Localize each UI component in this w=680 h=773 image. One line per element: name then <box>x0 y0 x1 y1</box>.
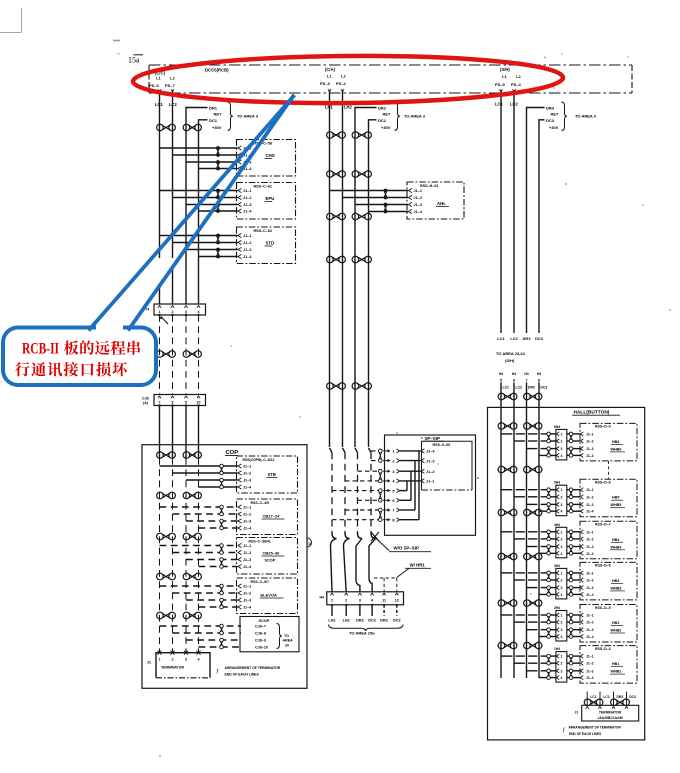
svg-text:J1–1: J1–1 <box>586 614 594 618</box>
svg-text:J1–1: J1–1 <box>586 488 594 492</box>
svg-text:J1–4: J1–4 <box>243 565 252 569</box>
svg-text:4H4: 4H4 <box>554 523 560 527</box>
svg-text:1: 1 <box>561 614 563 618</box>
svg-text:4: 4 <box>561 635 563 639</box>
svg-text:2: 2 <box>392 458 395 463</box>
svg-text:J1–4: J1–4 <box>586 593 594 597</box>
svg-text:H4: H4 <box>512 372 516 376</box>
svg-text:2H4: 2H4 <box>554 606 560 610</box>
svg-text:J1–2: J1–2 <box>243 551 251 555</box>
svg-text:DR3: DR3 <box>616 695 623 699</box>
svg-text:4: 4 <box>561 454 563 458</box>
svg-text:TO: TO <box>284 634 289 638</box>
svg-text:J1–4: J1–4 <box>586 510 594 514</box>
svg-text:4: 4 <box>392 479 395 484</box>
svg-text:J1–3: J1–3 <box>586 669 594 673</box>
svg-text:J1–4: J1–4 <box>243 255 252 259</box>
svg-text:LC2: LC2 <box>603 695 609 699</box>
svg-text:CJ8–9: CJ8–9 <box>255 639 266 643</box>
svg-text:J1–1: J1–1 <box>586 432 594 436</box>
svg-text:(S/H): (S/H) <box>505 358 515 363</box>
svg-text:H4: H4 <box>499 372 503 376</box>
svg-text:1: 1 <box>561 571 563 575</box>
svg-text:8: 8 <box>172 401 174 405</box>
svg-text:(S/H): (S/H) <box>500 67 510 72</box>
svg-text:7: 7 <box>525 378 527 383</box>
svg-text:DC2: DC2 <box>378 118 387 123</box>
svg-text:LC2: LC2 <box>510 102 518 107</box>
svg-text:LC1: LC1 <box>503 386 510 390</box>
svg-text:2: 2 <box>561 621 563 625</box>
svg-text:J1–2: J1–2 <box>586 662 594 666</box>
svg-text:CHS: CHS <box>266 153 275 158</box>
svg-text:DR3: DR3 <box>528 386 535 390</box>
svg-text:J1–4: J1–4 <box>414 210 423 214</box>
svg-text:LC1: LC1 <box>590 695 596 699</box>
svg-text:TERMINATOR: TERMINATOR <box>599 710 622 714</box>
svg-text:J1–1: J1–1 <box>243 189 251 193</box>
svg-text:RSS–C–38/41: RSS–C–38/41 <box>249 539 271 543</box>
svg-text:15a: 15a <box>128 56 140 65</box>
svg-text:HB5: HB5 <box>612 496 619 500</box>
svg-text:J1–2: J1–2 <box>586 495 594 499</box>
svg-text:3: 3 <box>392 469 395 474</box>
svg-text:RSS–C–61: RSS–C–61 <box>254 185 272 189</box>
svg-text:WHB1: WHB1 <box>611 670 622 674</box>
svg-text:AHL: AHL <box>437 201 446 206</box>
svg-text:RSS–D–8: RSS–D–8 <box>595 481 611 485</box>
svg-text:DR2: DR2 <box>356 619 364 623</box>
svg-text:CB17–24: CB17–24 <box>263 514 281 519</box>
svg-text:CJ8–8: CJ8–8 <box>255 632 266 636</box>
svg-text:RSS–H–61: RSS–H–61 <box>420 184 438 188</box>
svg-text:ƒ: ƒ <box>216 668 219 675</box>
svg-text:6H4: 6H4 <box>554 425 560 429</box>
svg-text:ARRANGEMENT OF TERMINATOR: ARRANGEMENT OF TERMINATOR <box>225 666 281 670</box>
svg-text:LH2: LH2 <box>343 619 350 623</box>
svg-text:J1–1: J1–1 <box>243 506 251 510</box>
svg-text:2: 2 <box>171 658 173 662</box>
svg-text:J1–3: J1–3 <box>586 447 594 451</box>
svg-text:3: 3 <box>561 545 563 549</box>
svg-text:DC2: DC2 <box>393 619 401 623</box>
svg-text:3: 3 <box>561 586 563 590</box>
svg-text:1: 1 <box>561 655 563 659</box>
svg-text:J1–4: J1–4 <box>243 606 252 610</box>
svg-text:RSS–D–4: RSS–D–4 <box>595 647 611 651</box>
svg-text:LC1: LC1 <box>155 102 163 107</box>
svg-text:J1–2: J1–2 <box>414 196 422 200</box>
svg-text:4: 4 <box>561 676 563 680</box>
svg-text:9: 9 <box>185 401 187 405</box>
svg-text:RSS(COPB)–C–6/12: RSS(COPB)–C–6/12 <box>243 458 275 462</box>
svg-text:CJ8: CJ8 <box>142 397 149 401</box>
svg-text:J1–3: J1–3 <box>243 558 251 562</box>
svg-text:STB: STB <box>268 472 276 477</box>
svg-text:+30V: +30V <box>381 125 391 130</box>
svg-text:3: 3 <box>561 628 563 632</box>
svg-text:2: 2 <box>561 495 563 499</box>
svg-text:W/O SP–SIP: W/O SP–SIP <box>394 546 419 551</box>
svg-text:DC3: DC3 <box>535 336 544 341</box>
svg-text:J1–3: J1–3 <box>243 203 251 207</box>
svg-text:RSS–C–6/7: RSS–C–6/7 <box>251 580 270 584</box>
svg-text:J1–2: J1–2 <box>243 196 251 200</box>
svg-text:CJ8–7: CJ8–7 <box>255 625 266 629</box>
svg-text:HB3: HB3 <box>612 579 619 583</box>
svg-text:L1: L1 <box>502 74 507 79</box>
svg-text:L2: L2 <box>516 74 521 79</box>
svg-text:J1–4: J1–4 <box>586 454 594 458</box>
svg-text:2: 2 <box>172 310 174 314</box>
svg-text:RET: RET <box>214 112 223 117</box>
svg-text:10: 10 <box>197 401 201 405</box>
svg-text:5: 5 <box>392 488 395 493</box>
svg-text:H4: H4 <box>524 372 528 376</box>
svg-text:J1–1: J1–1 <box>243 585 251 589</box>
svg-text:+30V: +30V <box>212 125 222 130</box>
svg-text:J1–1: J1–1 <box>243 234 251 238</box>
svg-text:3: 3 <box>185 658 187 662</box>
svg-text:PS–7: PS–7 <box>165 83 176 88</box>
svg-text:1: 1 <box>561 488 563 492</box>
svg-text:1: 1 <box>159 310 161 314</box>
svg-text:2: 2 <box>345 599 347 603</box>
svg-text:J1–2: J1–2 <box>426 470 434 474</box>
svg-text:4: 4 <box>197 658 200 662</box>
svg-text:J1–4: J1–4 <box>586 676 594 680</box>
svg-text:HB2: HB2 <box>612 621 619 625</box>
svg-text:J1–3: J1–3 <box>243 520 251 524</box>
svg-text:RSS–C–62: RSS–C–62 <box>254 229 272 233</box>
svg-text:J1–2: J1–2 <box>243 472 251 476</box>
svg-text:SCOP: SCOP <box>259 619 270 623</box>
svg-text:J1: J1 <box>147 661 151 665</box>
svg-text:RSS–D–9: RSS–D–9 <box>595 425 611 429</box>
svg-text:J1: J1 <box>575 711 579 715</box>
svg-text:LC2: LC2 <box>510 336 518 341</box>
svg-text:EPU: EPU <box>266 196 275 201</box>
svg-text:DCSS(RCB): DCSS(RCB) <box>205 68 229 73</box>
svg-text:PS–6: PS–6 <box>149 83 160 88</box>
svg-text:J1–3: J1–3 <box>586 503 594 507</box>
svg-text:J1–3: J1–3 <box>243 599 251 603</box>
svg-text:20: 20 <box>285 644 289 648</box>
svg-text:END OF EACH LINES: END OF EACH LINES <box>225 673 260 677</box>
svg-text:J1–4: J1–4 <box>243 486 252 490</box>
svg-text:TO AREA 3: TO AREA 3 <box>575 114 597 119</box>
svg-text:12: 12 <box>395 599 399 603</box>
svg-text:DR3: DR3 <box>546 106 555 111</box>
svg-text:3: 3 <box>561 447 563 451</box>
svg-text:L2: L2 <box>170 76 175 81</box>
svg-text:DR2: DR2 <box>378 106 387 111</box>
svg-text:DC3: DC3 <box>629 695 636 699</box>
svg-text:J1–3: J1–3 <box>243 479 251 483</box>
svg-text:J1–4: J1–4 <box>426 450 435 454</box>
svg-text:J1–1: J1–1 <box>414 189 422 193</box>
svg-text:HB1: HB1 <box>612 662 619 666</box>
svg-text:CB25–36: CB25–36 <box>263 551 281 556</box>
svg-text:AREA: AREA <box>283 639 294 643</box>
svg-text:J1–2: J1–2 <box>586 440 594 444</box>
svg-text:LC1: LC1 <box>495 102 503 107</box>
svg-text:2: 2 <box>561 579 563 583</box>
svg-text:1: 1 <box>561 530 563 534</box>
svg-text:4: 4 <box>561 510 563 514</box>
svg-text:J1–3: J1–3 <box>414 203 422 207</box>
svg-text:+30V: +30V <box>549 125 559 130</box>
svg-text:11: 11 <box>382 599 386 603</box>
svg-text:3: 3 <box>359 599 361 603</box>
svg-text:5H4: 5H4 <box>554 481 560 485</box>
svg-text:ELEVOA: ELEVOA <box>261 593 278 598</box>
svg-text:PS–2: PS–2 <box>336 81 347 86</box>
svg-text:L1: L1 <box>327 74 332 79</box>
svg-text:J1–1: J1–1 <box>586 530 594 534</box>
svg-text:W/ HR1: W/ HR1 <box>410 563 426 568</box>
svg-text:TO AREA 3: TO AREA 3 <box>404 114 426 119</box>
svg-text:J1–3: J1–3 <box>586 586 594 590</box>
svg-text:6: 6 <box>392 498 395 503</box>
svg-text:LC2: LC2 <box>516 386 523 390</box>
svg-text:WHB3: WHB3 <box>611 586 622 590</box>
svg-text:2: 2 <box>561 440 563 444</box>
svg-text:TO AREA 23,24: TO AREA 23,24 <box>496 351 526 356</box>
svg-text:J1–2: J1–2 <box>586 621 594 625</box>
svg-text:J1–4: J1–4 <box>586 552 594 556</box>
svg-text:WHB5: WHB5 <box>611 503 622 507</box>
svg-text:LC2: LC2 <box>169 102 177 107</box>
svg-text:RSS–C–4/5: RSS–C–4/5 <box>251 501 270 505</box>
svg-text:J1–3: J1–3 <box>243 248 251 252</box>
svg-text:J1–3: J1–3 <box>426 459 434 463</box>
svg-text:RET: RET <box>383 112 392 117</box>
svg-text:HB6: HB6 <box>612 440 619 444</box>
svg-text:3: 3 <box>561 503 563 507</box>
svg-text:SCOP: SCOP <box>265 559 276 563</box>
svg-text:CJ8–10: CJ8–10 <box>255 646 268 650</box>
svg-text:7: 7 <box>392 508 394 513</box>
svg-text:TO AREA 3: TO AREA 3 <box>237 114 259 119</box>
svg-text:DC3: DC3 <box>546 118 555 123</box>
svg-text:1: 1 <box>158 658 160 662</box>
svg-text:7: 7 <box>159 401 161 405</box>
svg-text:4: 4 <box>198 310 200 314</box>
svg-text:1H4: 1H4 <box>554 647 560 651</box>
svg-text:DR1: DR1 <box>209 106 218 111</box>
svg-text:DC1: DC1 <box>209 118 218 123</box>
svg-text:1: 1 <box>561 432 563 436</box>
svg-text:3: 3 <box>185 310 187 314</box>
svg-text:WHB4: WHB4 <box>611 545 623 549</box>
svg-text:LH1: LH1 <box>328 619 335 623</box>
svg-text:(A): (A) <box>143 401 149 405</box>
svg-text:4: 4 <box>561 593 563 597</box>
svg-text:STD: STD <box>266 241 275 246</box>
svg-text:DR3: DR3 <box>523 336 532 341</box>
svg-text:J1–3: J1–3 <box>586 628 594 632</box>
svg-text:3H4: 3H4 <box>554 564 560 568</box>
svg-text:L1: L1 <box>156 76 161 81</box>
svg-text:RSS–D–5: RSS–D–5 <box>595 606 611 610</box>
svg-text:4: 4 <box>561 552 563 556</box>
svg-text:3: 3 <box>561 669 563 673</box>
svg-text:J1–2: J1–2 <box>586 537 594 541</box>
svg-text:ARRANGEMENT OF TERMINATOR: ARRANGEMENT OF TERMINATOR <box>569 726 622 730</box>
svg-text:8: 8 <box>392 517 395 522</box>
svg-text:J1–1: J1–1 <box>586 655 594 659</box>
svg-text:J1–1: J1–1 <box>586 571 594 575</box>
svg-text:LC1: LC1 <box>497 336 505 341</box>
svg-text:PS–5: PS–5 <box>495 82 506 87</box>
svg-text:TO AREA 15a: TO AREA 15a <box>349 631 375 636</box>
svg-text:RCB-II: RCB-II <box>22 341 59 358</box>
svg-text:H4: H4 <box>537 372 541 376</box>
svg-text:1: 1 <box>392 449 395 454</box>
svg-text:J1–2: J1–2 <box>243 592 251 596</box>
svg-text:DR2: DR2 <box>380 619 388 623</box>
svg-text:L2: L2 <box>341 74 346 79</box>
svg-text:PS–3: PS–3 <box>320 81 331 86</box>
svg-text:PS–4: PS–4 <box>511 82 522 87</box>
svg-text:1: 1 <box>331 599 333 603</box>
svg-text:RSS–D–7: RSS–D–7 <box>595 523 611 527</box>
svg-text:HB4: HB4 <box>612 538 620 542</box>
svg-text:RSS–D–6: RSS–D–6 <box>595 564 611 568</box>
svg-text:DC2: DC2 <box>368 619 376 623</box>
svg-text:WHB2: WHB2 <box>611 629 622 633</box>
svg-text:J1–2: J1–2 <box>243 513 251 517</box>
svg-text:J1–1: J1–1 <box>243 544 251 548</box>
svg-text:SP–SIP: SP–SIP <box>425 436 440 441</box>
svg-text:RET: RET <box>551 112 560 117</box>
svg-text:J1–1: J1–1 <box>243 465 251 469</box>
svg-text:J1–4: J1–4 <box>586 635 594 639</box>
svg-text:J1–2: J1–2 <box>586 579 594 583</box>
svg-text:4: 4 <box>371 599 374 603</box>
svg-text:RSS–X–60: RSS–X–60 <box>433 443 451 447</box>
svg-text:ƒ: ƒ <box>563 728 566 734</box>
svg-text:J1–1: J1–1 <box>426 480 434 484</box>
svg-text:J1–3: J1–3 <box>586 545 594 549</box>
svg-text:HALL(BUTTON): HALL(BUTTON) <box>574 410 610 416</box>
svg-text:J1–2: J1–2 <box>243 241 251 245</box>
svg-text:END OF EACH LINES: END OF EACH LINES <box>569 732 601 736</box>
svg-text:H4: H4 <box>320 596 325 600</box>
svg-text:2: 2 <box>561 662 563 666</box>
svg-text:WHB6: WHB6 <box>611 447 622 451</box>
svg-text:DC3: DC3 <box>541 386 548 390</box>
svg-text:(C/A): (C/A) <box>325 67 336 72</box>
svg-text:J1–4: J1–4 <box>243 527 252 531</box>
svg-text:J1–4: J1–4 <box>243 210 252 214</box>
svg-text:JAA26BC1AAM: JAA26BC1AAM <box>597 716 622 720</box>
svg-text:TERMINATOR: TERMINATOR <box>161 666 184 670</box>
svg-text:2: 2 <box>561 537 563 541</box>
